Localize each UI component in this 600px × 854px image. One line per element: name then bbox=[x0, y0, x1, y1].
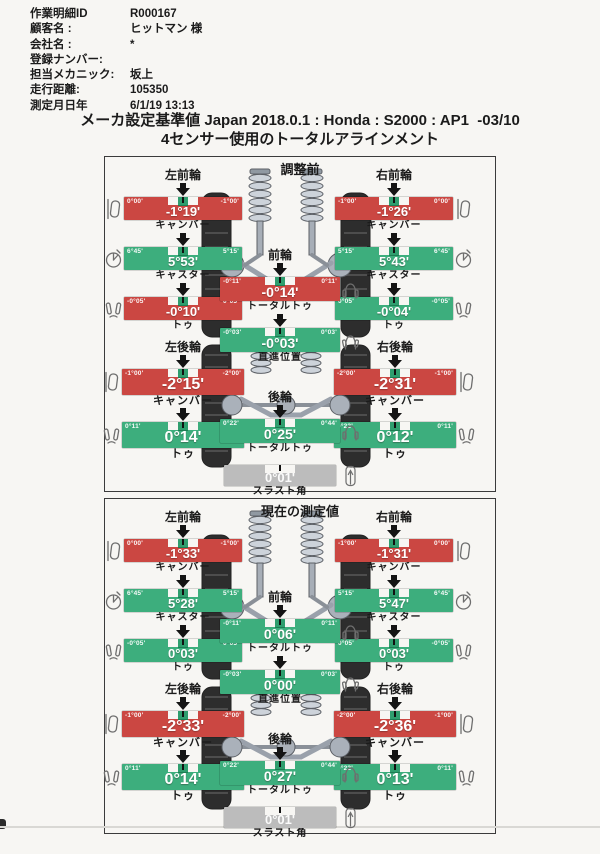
down-arrow-icon bbox=[386, 283, 402, 296]
lf-camber-value: -1°33' bbox=[124, 546, 242, 561]
report-subtitle: 4センサー使用のトータルアラインメント bbox=[0, 128, 600, 149]
meta-label: 顧客名 : bbox=[30, 22, 130, 37]
alignment-report: 作業明細IDR000167 顧客名 :ヒットマン 様 会社名 :* 登録ナンバー… bbox=[0, 0, 600, 854]
rear_center-total_toe-value: 0°25' bbox=[220, 426, 340, 442]
pointer-tick bbox=[279, 277, 281, 283]
toe-icon bbox=[458, 424, 475, 446]
rear_center-thrust-gauge: 0°01'スラスト角 bbox=[220, 807, 340, 840]
down-arrow-icon bbox=[272, 314, 288, 327]
lf-caster-name: キャスター bbox=[156, 612, 211, 624]
pointer-tick bbox=[182, 297, 184, 303]
rf-camber-name: キャンバー bbox=[367, 220, 422, 232]
rr-label: 右後輪 bbox=[377, 341, 413, 354]
lf-caster-name: キャスター bbox=[156, 270, 211, 282]
meta-value: 105350 bbox=[130, 83, 168, 98]
lr-label: 左後輪 bbox=[165, 683, 201, 696]
rear_center-thrust-gauge: 0°01'スラスト角 bbox=[220, 465, 340, 498]
sections-container: 調整前左前輪0°00'-1°00'-1°19'キャンバー6°45'5°15'5°… bbox=[0, 156, 600, 840]
lr-camber-name: キャンバー bbox=[153, 737, 213, 749]
pointer-tick bbox=[393, 297, 395, 303]
rear_center-thrust-bar: 0°01' bbox=[224, 465, 336, 486]
rear_center-label: 後輪 bbox=[268, 733, 292, 746]
meta-value: ヒットマン 様 bbox=[130, 22, 202, 37]
lf-camber-value: -1°19' bbox=[124, 204, 242, 219]
meta-row: 作業明細IDR000167 bbox=[30, 7, 202, 22]
spec-title: メーカ設定基準値 Japan 2018.0.1 : Honda : S2000 … bbox=[0, 109, 600, 130]
caster-icon bbox=[455, 590, 472, 612]
pointer-tick bbox=[393, 639, 395, 645]
rr-camber-value: -2°36' bbox=[334, 718, 456, 736]
pointer-tick bbox=[279, 761, 281, 767]
lr-toe-name: トゥ bbox=[171, 790, 195, 802]
meta-row: 顧客名 :ヒットマン 様 bbox=[30, 22, 202, 37]
meta-row: 会社名 :* bbox=[30, 38, 202, 53]
rf-camber-bar: -1°00'0°00'-1°26' bbox=[335, 197, 453, 220]
lf-toe-name: トゥ bbox=[172, 320, 194, 332]
down-arrow-icon bbox=[386, 625, 402, 638]
meta-row: 登録ナンバー: bbox=[30, 53, 202, 68]
down-arrow-icon bbox=[386, 183, 402, 196]
meta-label: 会社名 : bbox=[30, 38, 130, 53]
section-title: 調整前 bbox=[105, 159, 495, 178]
meta-label: 登録ナンバー: bbox=[30, 53, 130, 68]
rf-caster-gauge: 5°15'6°45'5°47'キャスター bbox=[335, 589, 453, 624]
pointer-tick bbox=[394, 711, 396, 717]
front_center-total_toe-value: 0°06' bbox=[220, 626, 340, 642]
lf-camber-bar: 0°00'-1°00'-1°19' bbox=[124, 197, 242, 220]
front_center-total_toe-gauge: -0°11'0°11'-0°14'トータルトゥ bbox=[220, 277, 340, 313]
toe-icon bbox=[103, 766, 120, 788]
rr-toe-name: トゥ bbox=[383, 790, 407, 802]
rr-camber-bar: -2°00'-1°00'-2°36' bbox=[334, 711, 456, 737]
front_center-total_toe-name: トータルトゥ bbox=[247, 643, 313, 655]
pointer-tick bbox=[182, 639, 184, 645]
rf-camber-bar: -1°00'0°00'-1°31' bbox=[335, 539, 453, 562]
pointer-tick bbox=[394, 764, 396, 770]
rear_center-thrust-bar: 0°01' bbox=[224, 807, 336, 828]
down-arrow-icon bbox=[175, 183, 191, 196]
rf-caster-gauge: 5°15'6°45'5°43'キャスター bbox=[335, 247, 453, 282]
camber-icon bbox=[105, 198, 122, 220]
rear_center-thrust-name: スラスト角 bbox=[253, 828, 308, 840]
car-top-icon bbox=[342, 420, 359, 442]
down-arrow-icon bbox=[175, 355, 191, 368]
front_center-total_toe-bar: -0°11'0°11'0°06' bbox=[220, 619, 340, 643]
rear_center-column: 後輪0°22'0°44'0°25'トータルトゥ0°01'スラスト角 bbox=[220, 391, 340, 498]
rf-toe-value: 0°03' bbox=[335, 646, 453, 661]
rf-camber-value: -1°31' bbox=[335, 546, 453, 561]
lf-camber-gauge: 0°00'-1°00'-1°19'キャンバー bbox=[124, 197, 242, 232]
rr-camber-gauge: -2°00'-1°00'-2°36'キャンバー bbox=[334, 711, 456, 749]
front_center-straight-name: 直進位置 bbox=[258, 694, 302, 706]
down-arrow-icon bbox=[175, 408, 191, 421]
down-arrow-icon bbox=[387, 750, 403, 763]
camber-icon bbox=[458, 371, 475, 393]
down-arrow-icon bbox=[272, 747, 288, 760]
pointer-tick bbox=[182, 711, 184, 717]
alignment-section-0: 調整前左前輪0°00'-1°00'-1°19'キャンバー6°45'5°15'5°… bbox=[104, 156, 496, 492]
rear_center-thrust-value: 0°01' bbox=[224, 470, 336, 485]
rear_center-thrust-value: 0°01' bbox=[224, 812, 336, 827]
lf-toe-name: トゥ bbox=[172, 662, 194, 674]
meta-value: * bbox=[130, 38, 134, 53]
rf-toe-gauge: 0°05'-0°05'-0°04'トゥ bbox=[335, 297, 453, 332]
caster-icon bbox=[455, 248, 472, 270]
down-arrow-icon bbox=[386, 525, 402, 538]
rf-camber-gauge: -1°00'0°00'-1°31'キャンバー bbox=[335, 539, 453, 574]
front_center-total_toe-bar: -0°11'0°11'-0°14' bbox=[220, 277, 340, 301]
toe-icon bbox=[105, 640, 122, 662]
down-arrow-icon bbox=[387, 355, 403, 368]
rf-caster-bar: 5°15'6°45'5°47' bbox=[335, 589, 453, 612]
front_center-total_toe-name: トータルトゥ bbox=[247, 301, 313, 313]
meta-row: 走行距離:105350 bbox=[30, 83, 202, 98]
pointer-tick bbox=[279, 419, 281, 425]
front_center-straight-name: 直進位置 bbox=[258, 352, 302, 364]
down-arrow-icon bbox=[272, 405, 288, 418]
toe-icon bbox=[103, 424, 120, 446]
front_center-label: 前輪 bbox=[268, 591, 292, 604]
meta-value: 坂上 bbox=[130, 68, 153, 83]
pointer-tick bbox=[394, 422, 396, 428]
rf-column: 右前輪-1°00'0°00'-1°26'キャンバー5°15'6°45'5°43'… bbox=[335, 169, 453, 332]
down-arrow-icon bbox=[175, 750, 191, 763]
lf-camber-name: キャンバー bbox=[156, 562, 211, 574]
down-arrow-icon bbox=[386, 233, 402, 246]
down-arrow-icon bbox=[175, 575, 191, 588]
down-arrow-icon bbox=[386, 575, 402, 588]
camber-icon bbox=[103, 713, 120, 735]
rear_center-total_toe-name: トータルトゥ bbox=[247, 443, 313, 455]
lf-camber-bar: 0°00'-1°00'-1°33' bbox=[124, 539, 242, 562]
meta-value: R000167 bbox=[130, 7, 177, 22]
pointer-tick bbox=[393, 197, 395, 203]
down-arrow-icon bbox=[387, 408, 403, 421]
rear_center-total_toe-gauge: 0°22'0°44'0°25'トータルトゥ bbox=[220, 419, 340, 455]
pointer-tick bbox=[182, 589, 184, 595]
rear_center-total_toe-gauge: 0°22'0°44'0°27'トータルトゥ bbox=[220, 761, 340, 797]
pointer-tick bbox=[182, 764, 184, 770]
camber-icon bbox=[455, 540, 472, 562]
down-arrow-icon bbox=[272, 263, 288, 276]
pointer-tick bbox=[393, 539, 395, 545]
rf-caster-bar: 5°15'6°45'5°43' bbox=[335, 247, 453, 270]
thrust-car-icon bbox=[342, 464, 359, 488]
lr-label: 左後輪 bbox=[165, 341, 201, 354]
rr-column: 右後輪-2°00'-1°00'-2°31'キャンバー0°22'0°11'0°12… bbox=[334, 341, 456, 460]
rear_center-total_toe-value: 0°27' bbox=[220, 768, 340, 784]
pointer-tick bbox=[182, 247, 184, 253]
rf-column: 右前輪-1°00'0°00'-1°31'キャンバー5°15'6°45'5°47'… bbox=[335, 511, 453, 674]
lr-toe-name: トゥ bbox=[171, 448, 195, 460]
front_center-total_toe-value: -0°14' bbox=[220, 284, 340, 300]
camber-icon bbox=[458, 713, 475, 735]
toe-icon bbox=[105, 298, 122, 320]
pointer-tick bbox=[182, 539, 184, 545]
front_center-total_toe-gauge: -0°11'0°11'0°06'トータルトゥ bbox=[220, 619, 340, 655]
rear_center-label: 後輪 bbox=[268, 391, 292, 404]
section-title: 現在の測定値 bbox=[105, 501, 495, 520]
rr-camber-name: キャンバー bbox=[365, 395, 425, 407]
rf-caster-value: 5°47' bbox=[335, 596, 453, 611]
rr-toe-name: トゥ bbox=[383, 448, 407, 460]
rf-toe-name: トゥ bbox=[383, 662, 405, 674]
rear_center-total_toe-bar: 0°22'0°44'0°25' bbox=[220, 419, 340, 443]
pointer-tick bbox=[393, 247, 395, 253]
rf-camber-gauge: -1°00'0°00'-1°26'キャンバー bbox=[335, 197, 453, 232]
rr-label: 右後輪 bbox=[377, 683, 413, 696]
caster-icon bbox=[105, 248, 122, 270]
rr-camber-bar: -2°00'-1°00'-2°31' bbox=[334, 369, 456, 395]
camber-icon bbox=[103, 371, 120, 393]
meta-label: 走行距離: bbox=[30, 83, 130, 98]
rear_center-total_toe-bar: 0°22'0°44'0°27' bbox=[220, 761, 340, 785]
front_center-label: 前輪 bbox=[268, 249, 292, 262]
camber-icon bbox=[455, 198, 472, 220]
down-arrow-icon bbox=[387, 697, 403, 710]
lf-camber-name: キャンバー bbox=[156, 220, 211, 232]
rr-camber-gauge: -2°00'-1°00'-2°31'キャンバー bbox=[334, 369, 456, 407]
pointer-tick bbox=[393, 589, 395, 595]
rf-toe-bar: 0°05'-0°05'-0°04' bbox=[335, 297, 453, 320]
rf-caster-name: キャスター bbox=[367, 612, 422, 624]
rf-toe-value: -0°04' bbox=[335, 304, 453, 319]
car-top-icon bbox=[342, 278, 359, 300]
down-arrow-icon bbox=[175, 283, 191, 296]
rf-caster-name: キャスター bbox=[367, 270, 422, 282]
pointer-tick bbox=[279, 328, 281, 334]
meta-label: 作業明細ID bbox=[30, 7, 130, 22]
caster-icon bbox=[105, 590, 122, 612]
rear_center-column: 後輪0°22'0°44'0°27'トータルトゥ0°01'スラスト角 bbox=[220, 733, 340, 840]
down-arrow-icon bbox=[175, 625, 191, 638]
rf-camber-name: キャンバー bbox=[367, 562, 422, 574]
pointer-tick bbox=[182, 422, 184, 428]
pointer-tick bbox=[279, 619, 281, 625]
down-arrow-icon bbox=[175, 697, 191, 710]
lr-camber-name: キャンバー bbox=[153, 395, 213, 407]
car-top-icon bbox=[342, 762, 359, 784]
down-arrow-icon bbox=[175, 233, 191, 246]
rr-column: 右後輪-2°00'-1°00'-2°36'キャンバー0°22'0°11'0°13… bbox=[334, 683, 456, 802]
toe-icon bbox=[458, 766, 475, 788]
pointer-tick bbox=[279, 670, 281, 676]
rear_center-total_toe-name: トータルトゥ bbox=[247, 785, 313, 797]
car-top-icon bbox=[342, 620, 359, 642]
rf-caster-value: 5°43' bbox=[335, 254, 453, 269]
meta-row: 担当メカニック:坂上 bbox=[30, 68, 202, 83]
rear_center-thrust-name: スラスト角 bbox=[253, 486, 308, 498]
down-arrow-icon bbox=[272, 656, 288, 669]
thrust-car-icon bbox=[342, 806, 359, 830]
rf-toe-name: トゥ bbox=[383, 320, 405, 332]
camber-icon bbox=[105, 540, 122, 562]
rr-camber-name: キャンバー bbox=[365, 737, 425, 749]
down-arrow-icon bbox=[175, 525, 191, 538]
pointer-tick bbox=[394, 369, 396, 375]
rf-toe-gauge: 0°05'-0°05'0°03'トゥ bbox=[335, 639, 453, 674]
rf-camber-value: -1°26' bbox=[335, 204, 453, 219]
meta-label: 担当メカニック: bbox=[30, 68, 130, 83]
pointer-tick bbox=[182, 197, 184, 203]
rf-toe-bar: 0°05'-0°05'0°03' bbox=[335, 639, 453, 662]
alignment-section-1: 現在の測定値左前輪0°00'-1°00'-1°33'キャンバー6°45'5°15… bbox=[104, 498, 496, 834]
toe-icon bbox=[455, 640, 472, 662]
toe-icon bbox=[455, 298, 472, 320]
pointer-tick bbox=[182, 369, 184, 375]
lf-camber-gauge: 0°00'-1°00'-1°33'キャンバー bbox=[124, 539, 242, 574]
down-arrow-icon bbox=[272, 605, 288, 618]
report-meta: 作業明細IDR000167 顧客名 :ヒットマン 様 会社名 :* 登録ナンバー… bbox=[30, 7, 202, 114]
rr-camber-value: -2°31' bbox=[334, 376, 456, 394]
